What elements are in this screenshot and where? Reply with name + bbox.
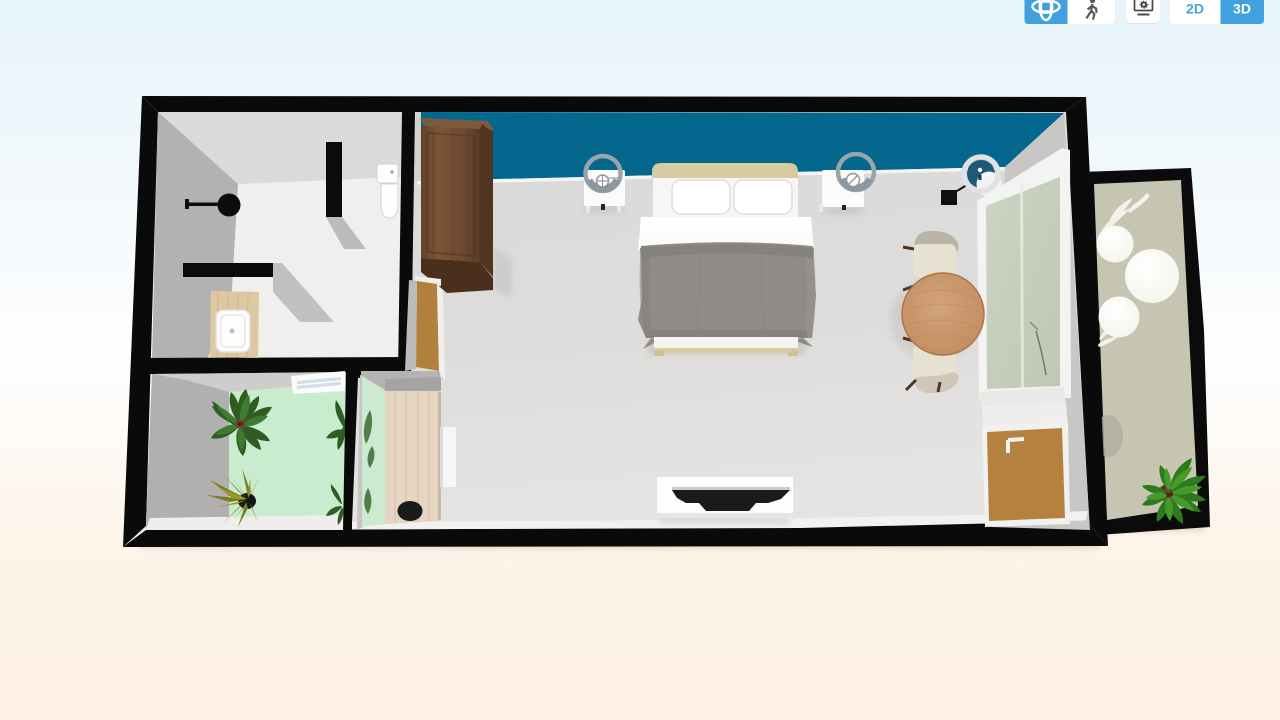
svg-text:2D: 2D (1186, 1, 1204, 17)
svg-text:3D: 3D (1233, 1, 1251, 17)
